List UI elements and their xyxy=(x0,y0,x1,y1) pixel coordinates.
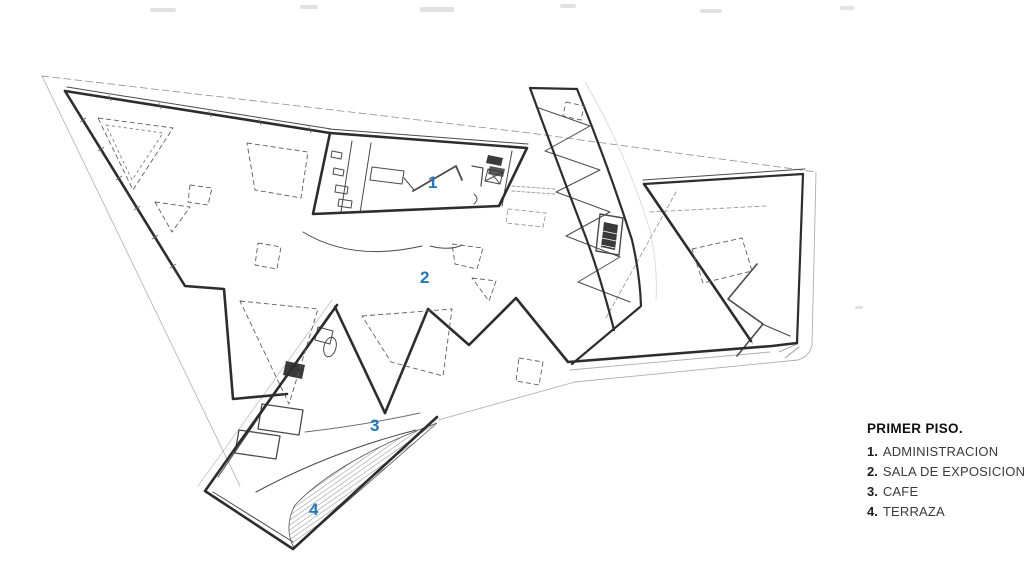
legend: PRIMER PISO. 1.ADMINISTRACION 2.SALA DE … xyxy=(867,421,1024,524)
plan-label-cafe: 3 xyxy=(370,417,379,434)
legend-item-sala-de-exposiciones: 2.SALA DE EXPOSICIONES xyxy=(867,464,1024,479)
plan-label-sala-de-exposiciones: 2 xyxy=(420,269,429,286)
sawtooth-south-edge xyxy=(385,298,568,413)
floor-plan-canvas: 1 2 3 4 PRIMER PISO. 1.ADMINISTRACION 2.… xyxy=(0,0,1024,567)
scan-noise xyxy=(150,4,863,309)
plan-label-administracion: 1 xyxy=(428,174,437,191)
right-wing-top-right-walls xyxy=(644,174,803,343)
legend-item-number: 3. xyxy=(867,484,878,499)
legend-item-number: 2. xyxy=(867,464,878,479)
legend-item-label: ADMINISTRACION xyxy=(883,444,998,459)
north-wall xyxy=(65,91,330,133)
cafe-wedge-inner-edge xyxy=(335,307,385,413)
legend-item-cafe: 3.CAFE xyxy=(867,484,1024,499)
main-walls xyxy=(65,91,803,549)
legend-item-label: CAFE xyxy=(883,484,918,499)
legend-item-administracion: 1.ADMINISTRACION xyxy=(867,444,1024,459)
legend-item-label: SALA DE EXPOSICIONES xyxy=(883,464,1024,479)
legend-item-terraza: 4.TERRAZA xyxy=(867,504,1024,519)
legend-item-label: TERRAZA xyxy=(883,504,945,519)
legend-item-number: 1. xyxy=(867,444,878,459)
legend-item-number: 4. xyxy=(867,504,878,519)
wall-ticks xyxy=(80,95,311,268)
legend-title: PRIMER PISO. xyxy=(867,421,1024,436)
ramp-bottom-wall xyxy=(572,307,640,364)
plan-label-terraza: 4 xyxy=(309,501,318,518)
